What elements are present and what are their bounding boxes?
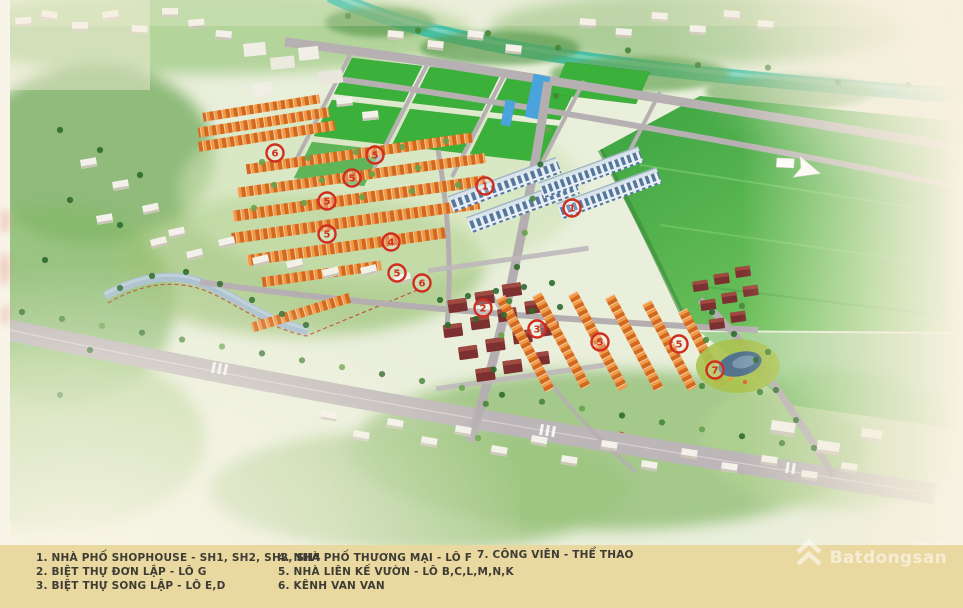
svg-text:1: 1 [569,204,576,215]
legend-item: 7. CÔNG VIÊN - THỂ THAO [477,548,634,562]
svg-text:5: 5 [676,340,683,351]
legend-item: 5. NHÀ LIÊN KẾ VƯỜN - LÔ B,C,L,M,N,K [278,565,514,579]
svg-text:3: 3 [534,325,541,336]
svg-text:6: 6 [272,149,279,160]
svg-text:7: 7 [712,366,719,377]
left-margin-strip [0,0,10,545]
legend-column: 7. CÔNG VIÊN - THỂ THAO [477,548,634,562]
lot-marker: 5 [367,147,384,164]
lot-marker: 5 [592,334,609,351]
lot-marker: 2 [475,300,492,317]
svg-text:2: 2 [480,304,487,315]
watermark-text: com.vn Batdongsan [830,541,947,567]
lot-marker: 5 [671,336,688,353]
svg-text:5: 5 [597,338,604,349]
svg-text:4: 4 [388,238,395,249]
lot-marker: 7 [707,362,724,379]
svg-text:6: 6 [419,279,426,290]
lot-marker: 5 [344,170,361,187]
lot-marker: 4 [383,234,400,251]
svg-text:1: 1 [482,182,489,193]
watermark-brand: Batdongsan [830,550,947,567]
master-plan-page: 655551145623557 1. NHÀ PHỐ SHOPHOUSE - S… [0,0,963,608]
lot-marker: 3 [529,321,546,338]
lot-marker: 5 [389,265,406,282]
legend-item: 6. KÊNH VAN VAN [278,579,514,593]
lot-marker: 5 [319,226,336,243]
legend-panel: 1. NHÀ PHỐ SHOPHOUSE - SH1, SH2, SH3, SH… [0,545,963,608]
svg-text:5: 5 [324,197,331,208]
lot-marker: 1 [564,200,581,217]
lot-marker: 5 [319,193,336,210]
lot-marker: 6 [414,275,431,292]
svg-text:5: 5 [349,174,356,185]
lot-marker: 1 [477,178,494,195]
svg-text:5: 5 [324,230,331,241]
master-plan-map: 655551145623557 [0,0,963,545]
svg-text:5: 5 [394,269,401,280]
svg-text:5: 5 [372,151,379,162]
lot-marker: 6 [267,145,284,162]
